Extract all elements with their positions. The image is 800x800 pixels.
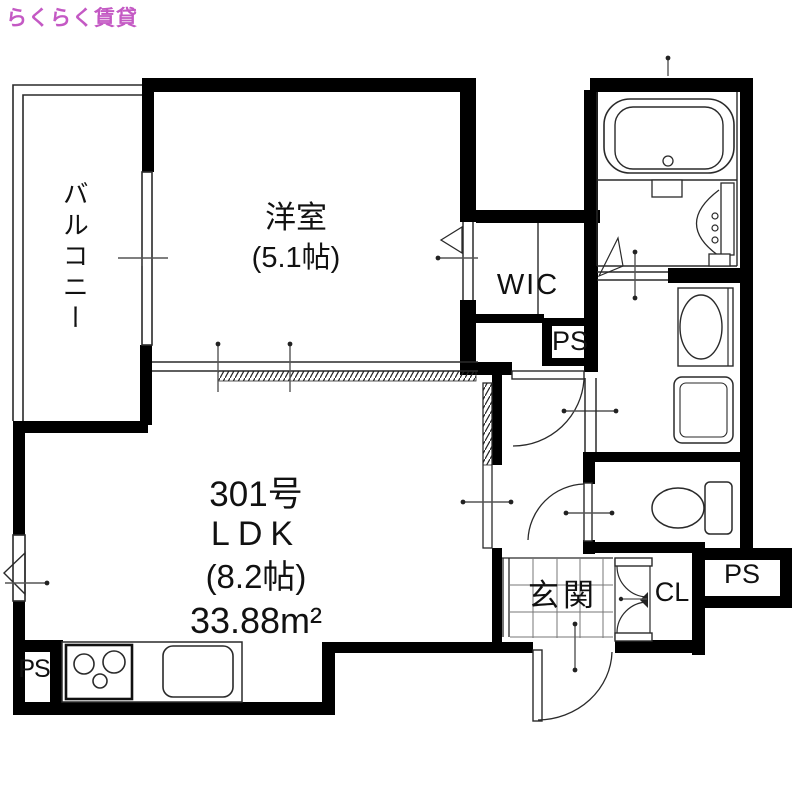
- shower-area: [652, 180, 734, 266]
- pipe-space-lower-left-label: PS: [15, 656, 53, 682]
- unit-size: (8.2帖): [96, 560, 416, 595]
- kitchen-counter: [62, 642, 242, 702]
- corridor-sliding-door: [461, 383, 514, 548]
- pipe-space-lower-right-label: PS: [710, 560, 774, 588]
- room-label-wic: WIC: [478, 270, 578, 300]
- room-label-entrance: 玄関: [510, 580, 616, 613]
- washbasin-icon: [678, 288, 733, 366]
- bathtub-icon: [604, 99, 734, 173]
- room-label-balcony: バルコニー: [60, 172, 87, 342]
- ldk-window-icon: [4, 535, 49, 601]
- toilet-door-icon: [528, 483, 614, 541]
- unit-area: 33.88m²: [96, 602, 416, 640]
- floor-plan-page: らくらく賃貸 バルコニー 洋室 (5.1帖) 301号 LDK (8.2帖) 3…: [0, 0, 800, 800]
- room-size-western-room: (5.1帖): [146, 243, 446, 273]
- bath-door-icon: [597, 56, 670, 301]
- washroom-partition: [585, 378, 596, 452]
- room-partition-sliding-door: [152, 342, 478, 392]
- floor-plan-drawing: [0, 0, 800, 800]
- closet-label: CL: [650, 578, 694, 606]
- washing-machine-pan-icon: [674, 377, 733, 443]
- site-watermark: らくらく賃貸: [6, 8, 138, 30]
- toilet-icon: [652, 482, 732, 534]
- stove-icon: [66, 645, 132, 699]
- kitchen-sink-icon: [163, 646, 233, 697]
- unit-number: 301号: [96, 477, 416, 514]
- washroom-door-icon: [512, 371, 618, 446]
- closet-bifold-door-icon: [615, 558, 652, 641]
- pipe-space-upper-label: PS: [544, 327, 596, 355]
- room-label-western-room: 洋室: [146, 202, 446, 235]
- unit-type: LDK: [96, 517, 416, 553]
